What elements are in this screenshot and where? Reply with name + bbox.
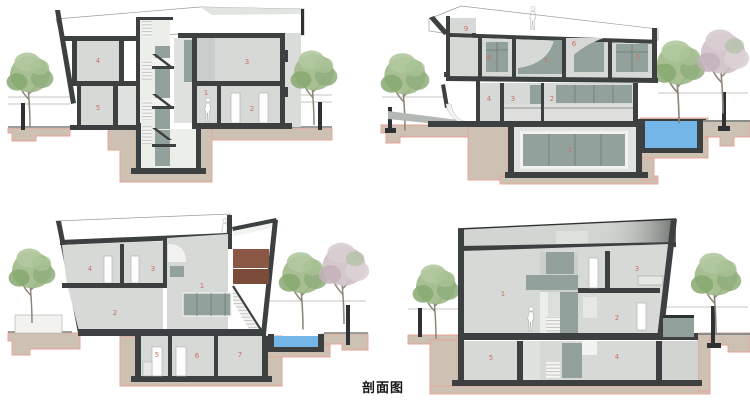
door xyxy=(131,256,139,283)
planter xyxy=(15,315,62,333)
fence-post xyxy=(418,308,422,337)
section-top-left: 45312 xyxy=(7,7,338,182)
door xyxy=(259,93,268,123)
stairs xyxy=(142,21,152,38)
tree xyxy=(691,253,741,333)
room-number-label: 5 xyxy=(155,351,159,359)
room-number-label: 3 xyxy=(151,265,155,273)
stairs xyxy=(233,289,259,331)
glazing xyxy=(183,293,231,316)
section-bottom-left: 4312567 xyxy=(8,214,369,386)
pool-water xyxy=(273,336,319,347)
fence-post xyxy=(318,102,322,130)
door xyxy=(589,258,598,288)
ground-slab xyxy=(70,125,136,130)
tree xyxy=(279,252,328,329)
room-number-label: 2 xyxy=(615,314,619,322)
basement-slab xyxy=(131,376,272,382)
brown-wall-upper xyxy=(233,249,269,268)
room-number-label: 2 xyxy=(113,309,117,317)
room-number-label: 2 xyxy=(550,95,554,103)
room-number-label: 1 xyxy=(204,89,208,97)
sections-drawing: 45312 xyxy=(0,0,750,403)
room-number-label: 5 xyxy=(636,53,640,61)
room-number-label: 1 xyxy=(501,290,505,298)
basement-glazing xyxy=(523,134,625,166)
room-number-label: 7 xyxy=(544,57,548,65)
room-number-label: 4 xyxy=(615,353,620,361)
room-number-label: 3 xyxy=(511,95,515,103)
fence-post xyxy=(346,305,350,345)
basement-slab xyxy=(452,380,702,386)
tree xyxy=(319,243,369,324)
room-number-label: 3 xyxy=(635,265,639,273)
ground-slab xyxy=(458,333,698,340)
room-number-label: 5 xyxy=(489,354,493,362)
room-number-label: 4 xyxy=(487,95,492,103)
door xyxy=(637,303,646,330)
retaining-box xyxy=(663,317,694,337)
room-number-label: 4 xyxy=(96,57,101,65)
building xyxy=(55,7,304,174)
left-wall xyxy=(458,229,464,342)
room-number-label: 1 xyxy=(568,146,572,154)
architectural-sections-sheet: 45312 xyxy=(0,0,750,403)
pool xyxy=(268,334,324,352)
pool-water xyxy=(645,121,697,148)
stairs xyxy=(546,316,560,332)
door xyxy=(176,347,186,376)
upper-floor xyxy=(62,241,167,285)
room-number-label: 5 xyxy=(96,104,100,112)
ground-slab xyxy=(428,121,642,127)
building xyxy=(56,214,278,382)
basement-slab xyxy=(505,172,648,178)
room-number-label: 3 xyxy=(245,58,249,66)
brown-wall-lower xyxy=(233,269,269,284)
basement-slab xyxy=(131,168,206,174)
room-number-label: 1 xyxy=(200,282,204,290)
fence-post xyxy=(711,306,715,345)
section-bottom-right: 13254 xyxy=(408,219,750,394)
room-number-label: 6 xyxy=(572,40,577,48)
stairs xyxy=(546,362,560,378)
right-wall xyxy=(652,28,657,80)
fence-post xyxy=(21,103,25,130)
room-number-label: 7 xyxy=(238,351,242,359)
tree xyxy=(9,248,56,323)
ground-slab xyxy=(78,329,266,336)
room-number-label: 2 xyxy=(250,105,254,113)
room-number-label: 8 xyxy=(487,54,491,62)
tree xyxy=(7,52,54,127)
room-number-label: 9 xyxy=(464,25,468,33)
door xyxy=(231,93,240,123)
door xyxy=(104,256,112,283)
tree xyxy=(653,40,705,123)
drawing-caption: 剖面图 xyxy=(335,377,431,396)
section-top-right: 987654321 xyxy=(381,6,750,184)
person-on-roof xyxy=(530,6,536,29)
room-number-label: 4 xyxy=(88,265,93,273)
room-number-label: 6 xyxy=(195,352,200,360)
building xyxy=(388,6,658,178)
